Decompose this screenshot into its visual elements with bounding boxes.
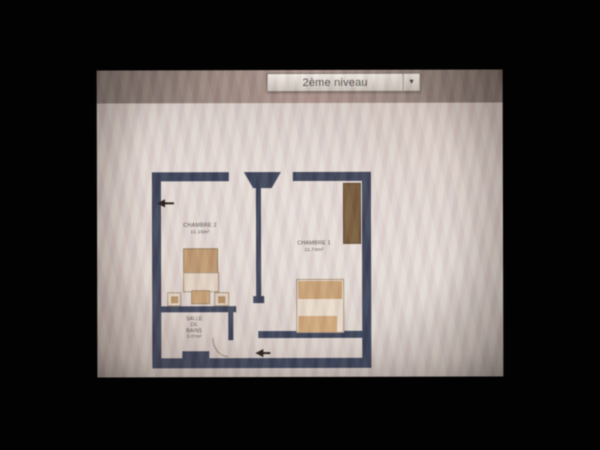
wall-top-center-pier: [244, 172, 281, 188]
wardrobe: [343, 183, 361, 244]
bed2-pillow: [191, 290, 210, 304]
bathroom-window-notch: [182, 351, 209, 359]
level-select-arrow-button[interactable]: ▼: [403, 74, 420, 91]
nightstand-left-lamp: [171, 296, 178, 303]
bed2-duvet: [183, 248, 218, 273]
chambre2-area: 11.15m²: [173, 229, 228, 235]
chambre1-area: 11.74m²: [287, 246, 342, 252]
wall-bathroom-top: [161, 306, 236, 312]
room-label-chambre1: CHAMBRE 1 11.74m²: [287, 240, 342, 252]
bed1-pillow: [298, 281, 342, 299]
wall-top-left: [152, 172, 229, 181]
bed1-blanket: [298, 316, 337, 332]
wall-top-right: [293, 172, 371, 181]
corridor-arrow-icon: [262, 352, 270, 354]
room-label-bathroom: SALLE DE BAINS 3.07m²: [169, 316, 219, 339]
room-label-chambre2: CHAMBRE 2 11.15m²: [172, 222, 227, 234]
bathroom-door-arc: [212, 338, 228, 357]
wall-partition-center: [256, 184, 261, 302]
page-header-band: 2ème niveau ▼: [97, 69, 503, 103]
entry-arrow-icon: [164, 202, 174, 204]
photo-of-screen: 2ème niveau ▼: [0, 0, 600, 450]
wall-partition-foot: [253, 296, 264, 303]
wall-bottom: [152, 358, 371, 369]
nightstand-right: [214, 292, 229, 306]
nightstand-left: [167, 292, 181, 306]
nightstand-right-lamp: [218, 296, 225, 303]
chevron-down-icon: ▼: [408, 79, 415, 86]
wall-bathroom-right: [228, 312, 233, 340]
level-select-value[interactable]: 2ème niveau: [268, 76, 403, 88]
content-area: CHAMBRE 2 11.15m² CHAMBRE 1 11.74m² SALL…: [97, 102, 504, 377]
level-select[interactable]: 2ème niveau ▼: [267, 73, 421, 92]
floor-plan: CHAMBRE 2 11.15m² CHAMBRE 1 11.74m² SALL…: [150, 170, 373, 371]
bathroom-area: 3.07m²: [169, 334, 219, 339]
wall-right: [362, 172, 372, 368]
screen-area: 2ème niveau ▼: [97, 69, 504, 377]
